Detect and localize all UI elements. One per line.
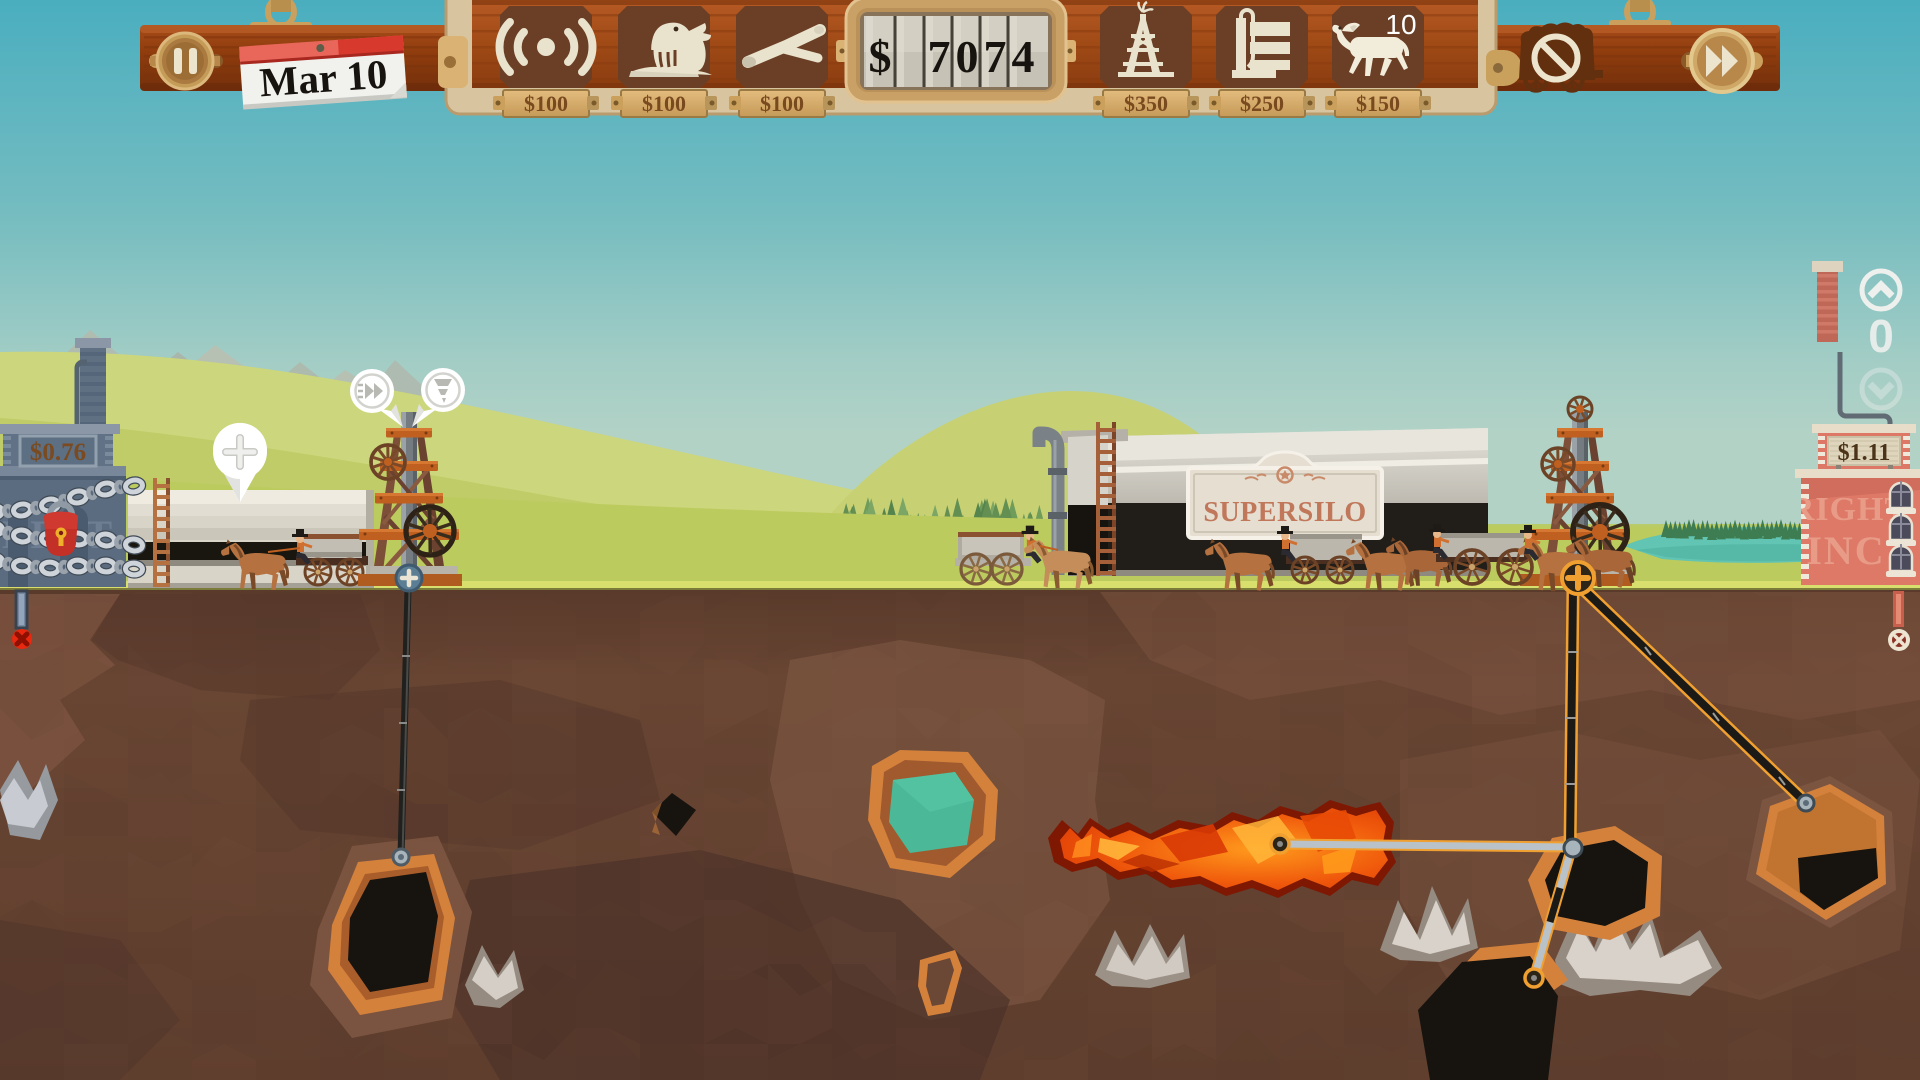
svg-text:$: $ [869, 31, 892, 82]
svg-text:$350: $350 [1124, 91, 1168, 116]
svg-text:INC: INC [1806, 528, 1885, 573]
svg-text:7: 7 [984, 31, 1007, 82]
svg-text:10: 10 [1385, 9, 1416, 40]
svg-text:$150: $150 [1356, 91, 1400, 116]
svg-text:$1.11: $1.11 [1838, 440, 1891, 466]
svg-text:Mar 10: Mar 10 [258, 51, 389, 106]
svg-text:$0.76: $0.76 [30, 439, 86, 466]
svg-text:$100: $100 [642, 91, 686, 116]
svg-text:$100: $100 [524, 91, 568, 116]
svg-text:$250: $250 [1240, 91, 1284, 116]
svg-text:0: 0 [1868, 310, 1894, 362]
svg-text:4: 4 [1012, 31, 1035, 82]
svg-text:7: 7 [928, 31, 951, 82]
svg-text:SUPERSILO: SUPERSILO [1203, 497, 1366, 528]
svg-text:$100: $100 [760, 91, 804, 116]
svg-text:0: 0 [956, 31, 979, 82]
